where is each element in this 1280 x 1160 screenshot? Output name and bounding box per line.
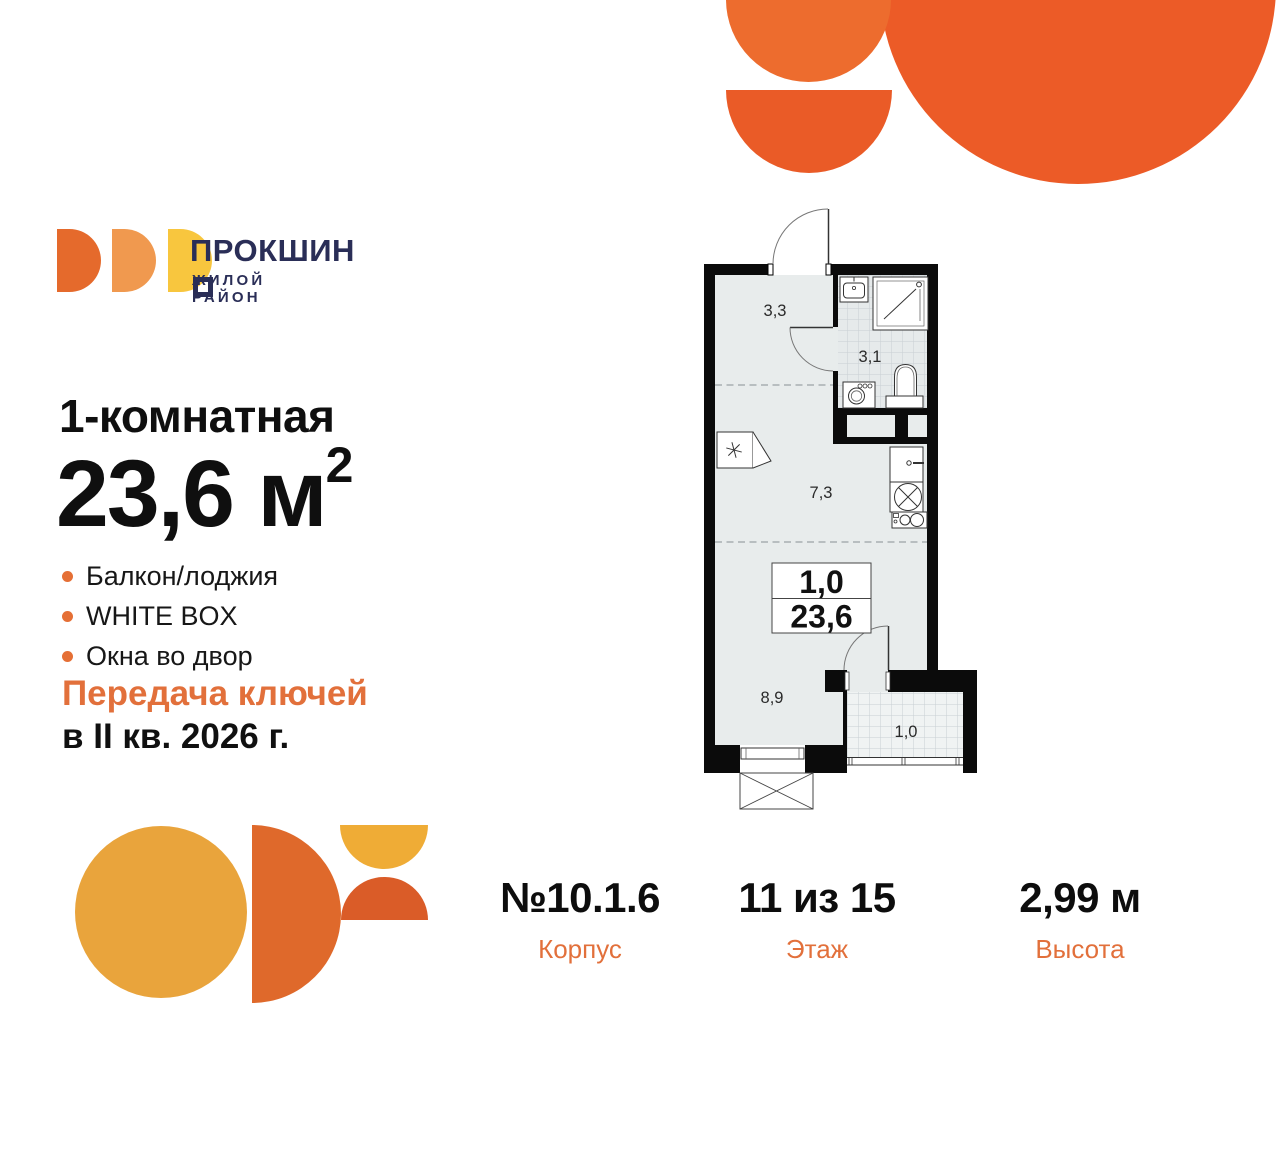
stat-floor: 11 из 15 Этаж — [692, 874, 942, 965]
bullet-dot-icon — [62, 651, 73, 662]
kitchen-cabinet-icon — [890, 447, 924, 482]
kitchen-sink-icon — [890, 482, 923, 512]
feature-label: Окна во двор — [86, 641, 253, 672]
ac-basket-icon — [740, 773, 813, 809]
balcony-glazing-icon — [847, 758, 963, 766]
developer-logo: A101 — [75, 826, 247, 998]
decor-semicircle-icon — [726, 90, 892, 173]
developer-halfcircle-icon — [340, 825, 428, 869]
stat-label: Этаж — [692, 934, 942, 965]
plan-label-box: 1,0 23,6 — [772, 563, 871, 635]
entrance-door-icon — [768, 209, 831, 275]
rooms-title: 1-комнатная — [59, 389, 334, 443]
area-headline: 23,6 м2 — [56, 436, 351, 549]
sink-icon — [840, 277, 868, 302]
decor-circle-icon — [880, 0, 1276, 184]
stat-building: №10.1.6 Корпус — [455, 874, 705, 965]
window-icon — [741, 748, 804, 759]
decor-semicircle-icon — [726, 0, 891, 82]
cooktop-icon — [892, 512, 927, 528]
room-area-label: 1,0 — [895, 723, 918, 741]
stat-value: 2,99 м — [955, 874, 1205, 922]
listing-card: ПРОКШИН ЖИЛОЙ РАЙОН 1-комнатная 23,6 м2 … — [0, 0, 1280, 1160]
bullet-dot-icon — [62, 571, 73, 582]
room-area-label: 3,1 — [859, 348, 882, 366]
area-value: 23,6 — [56, 441, 233, 547]
area-superscript: 2 — [326, 437, 352, 493]
stat-label: Высота — [955, 934, 1205, 965]
room-area-label: 7,3 — [810, 484, 833, 502]
list-item: Балкон/лоджия — [62, 556, 278, 596]
bullet-dot-icon — [62, 611, 73, 622]
feature-label: WHITE BOX — [86, 601, 238, 632]
brand-halfcircle-icon — [57, 229, 101, 292]
brand-name-text: ПРОКШИН — [190, 233, 355, 268]
stat-value: №10.1.6 — [455, 874, 705, 922]
shower-icon — [873, 277, 928, 330]
handover-title: Передача ключей — [62, 674, 368, 714]
area-unit: м — [257, 441, 325, 547]
feature-list: Балкон/лоджия WHITE BOX Окна во двор — [62, 556, 278, 676]
brand-tagline: ЖИЛОЙ РАЙОН — [192, 272, 265, 306]
stat-value: 11 из 15 — [692, 874, 942, 922]
stat-label: Корпус — [455, 934, 705, 965]
brand-halfcircle-icon — [112, 229, 156, 292]
handover-date: в II кв. 2026 г. — [62, 717, 289, 757]
developer-halfcircle-icon — [341, 877, 428, 920]
developer-halfcircle-icon — [252, 825, 341, 1003]
list-item: Окна во двор — [62, 636, 278, 676]
stat-ceiling-height: 2,99 м Высота — [955, 874, 1205, 965]
room-area-label: 8,9 — [761, 689, 784, 707]
floor-plan: 1,0 23,6 3,3 3,1 7,3 8,9 1,0 — [690, 195, 990, 840]
list-item: WHITE BOX — [62, 596, 278, 636]
washing-machine-icon — [843, 382, 875, 408]
plan-rooms-count: 1,0 — [799, 564, 843, 600]
plan-total-area: 23,6 — [790, 599, 852, 635]
room-area-label: 3,3 — [764, 302, 787, 320]
feature-label: Балкон/лоджия — [86, 561, 278, 592]
